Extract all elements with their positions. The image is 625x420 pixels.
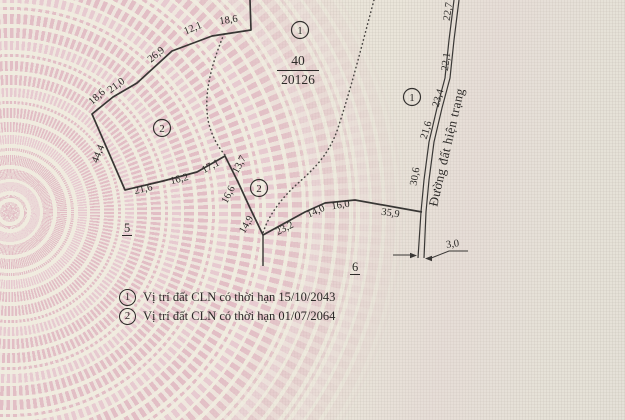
dimension-label: 30,6	[409, 167, 423, 187]
zone1-marker: 1	[292, 22, 309, 39]
legend-item-zone2: 2 Vị trí đất CLN có thời hạn 01/07/2064	[119, 308, 335, 325]
dimension-label: 23,4	[431, 87, 447, 109]
dimension-label: 21,6	[133, 182, 153, 197]
zone-divider-dotted-line-right	[263, 0, 374, 233]
dimension-label: 14,9	[237, 214, 256, 235]
dimension-label: 21,6	[419, 120, 435, 141]
zone1-marker: 1	[404, 89, 421, 106]
zone2-legend-text: Vị trí đất CLN có thời hạn 01/07/2064	[143, 309, 335, 324]
legend: 1 Vị trí đất CLN có thời hạn 15/10/2043 …	[119, 289, 335, 325]
cadastral-certificate-scan: 3,0 18,6 12,1 26,9 21,0 18,6 44,4 21,6 1…	[0, 0, 625, 420]
zone2-marker: 2	[251, 180, 268, 197]
zone1-marker-number: 1	[297, 25, 303, 37]
parcel-6-number: 6	[350, 260, 360, 275]
dimension-label: 13,7	[231, 154, 249, 175]
zone2-marker: 2	[154, 120, 171, 137]
dimension-label: 14,0	[305, 203, 326, 221]
dimension-label: 35,9	[380, 207, 400, 221]
zone-divider-dotted-line-left	[207, 34, 225, 155]
parcel-5-number: 5	[122, 221, 132, 236]
zone2-marker-number: 2	[256, 183, 262, 195]
dimension-label: 18,6	[219, 14, 239, 28]
dimension-label: 44,4	[90, 143, 107, 165]
parcel-area: 20126	[281, 72, 315, 87]
dimension-label: 16,2	[169, 172, 189, 187]
dimension-label: 3,0	[445, 238, 460, 251]
road-width-dimension-leader	[430, 251, 468, 259]
adjacent-parcel-label: 5	[122, 219, 132, 237]
dimension-label: 23,2	[274, 220, 295, 238]
parcel-number-area-label: 40 20126	[275, 53, 321, 87]
parcel-boundary-line	[92, 0, 422, 235]
dimension-label: 16,6	[220, 184, 238, 205]
adjacent-parcel-label: 6	[350, 258, 360, 276]
dimension-label: 21,0	[106, 76, 127, 96]
zone1-legend-circle: 1	[119, 289, 136, 306]
zone2-marker-number: 2	[159, 123, 165, 135]
dimension-arrow-right-icon	[410, 253, 417, 258]
dimension-label: 22,7	[442, 2, 456, 22]
dimension-label: 22,1	[440, 52, 453, 72]
parcel-number: 40	[291, 53, 305, 68]
dimension-label: 26,9	[146, 45, 167, 65]
zone1-legend-text: Vị trí đất CLN có thời hạn 15/10/2043	[143, 290, 335, 305]
dimension-label: 16,0	[331, 199, 351, 213]
zone1-marker-number: 1	[409, 92, 415, 104]
dimension-label: 12,1	[182, 20, 203, 37]
legend-item-zone1: 1 Vị trí đất CLN có thời hạn 15/10/2043	[119, 289, 335, 306]
fraction-bar	[277, 70, 319, 71]
zone2-legend-circle: 2	[119, 308, 136, 325]
